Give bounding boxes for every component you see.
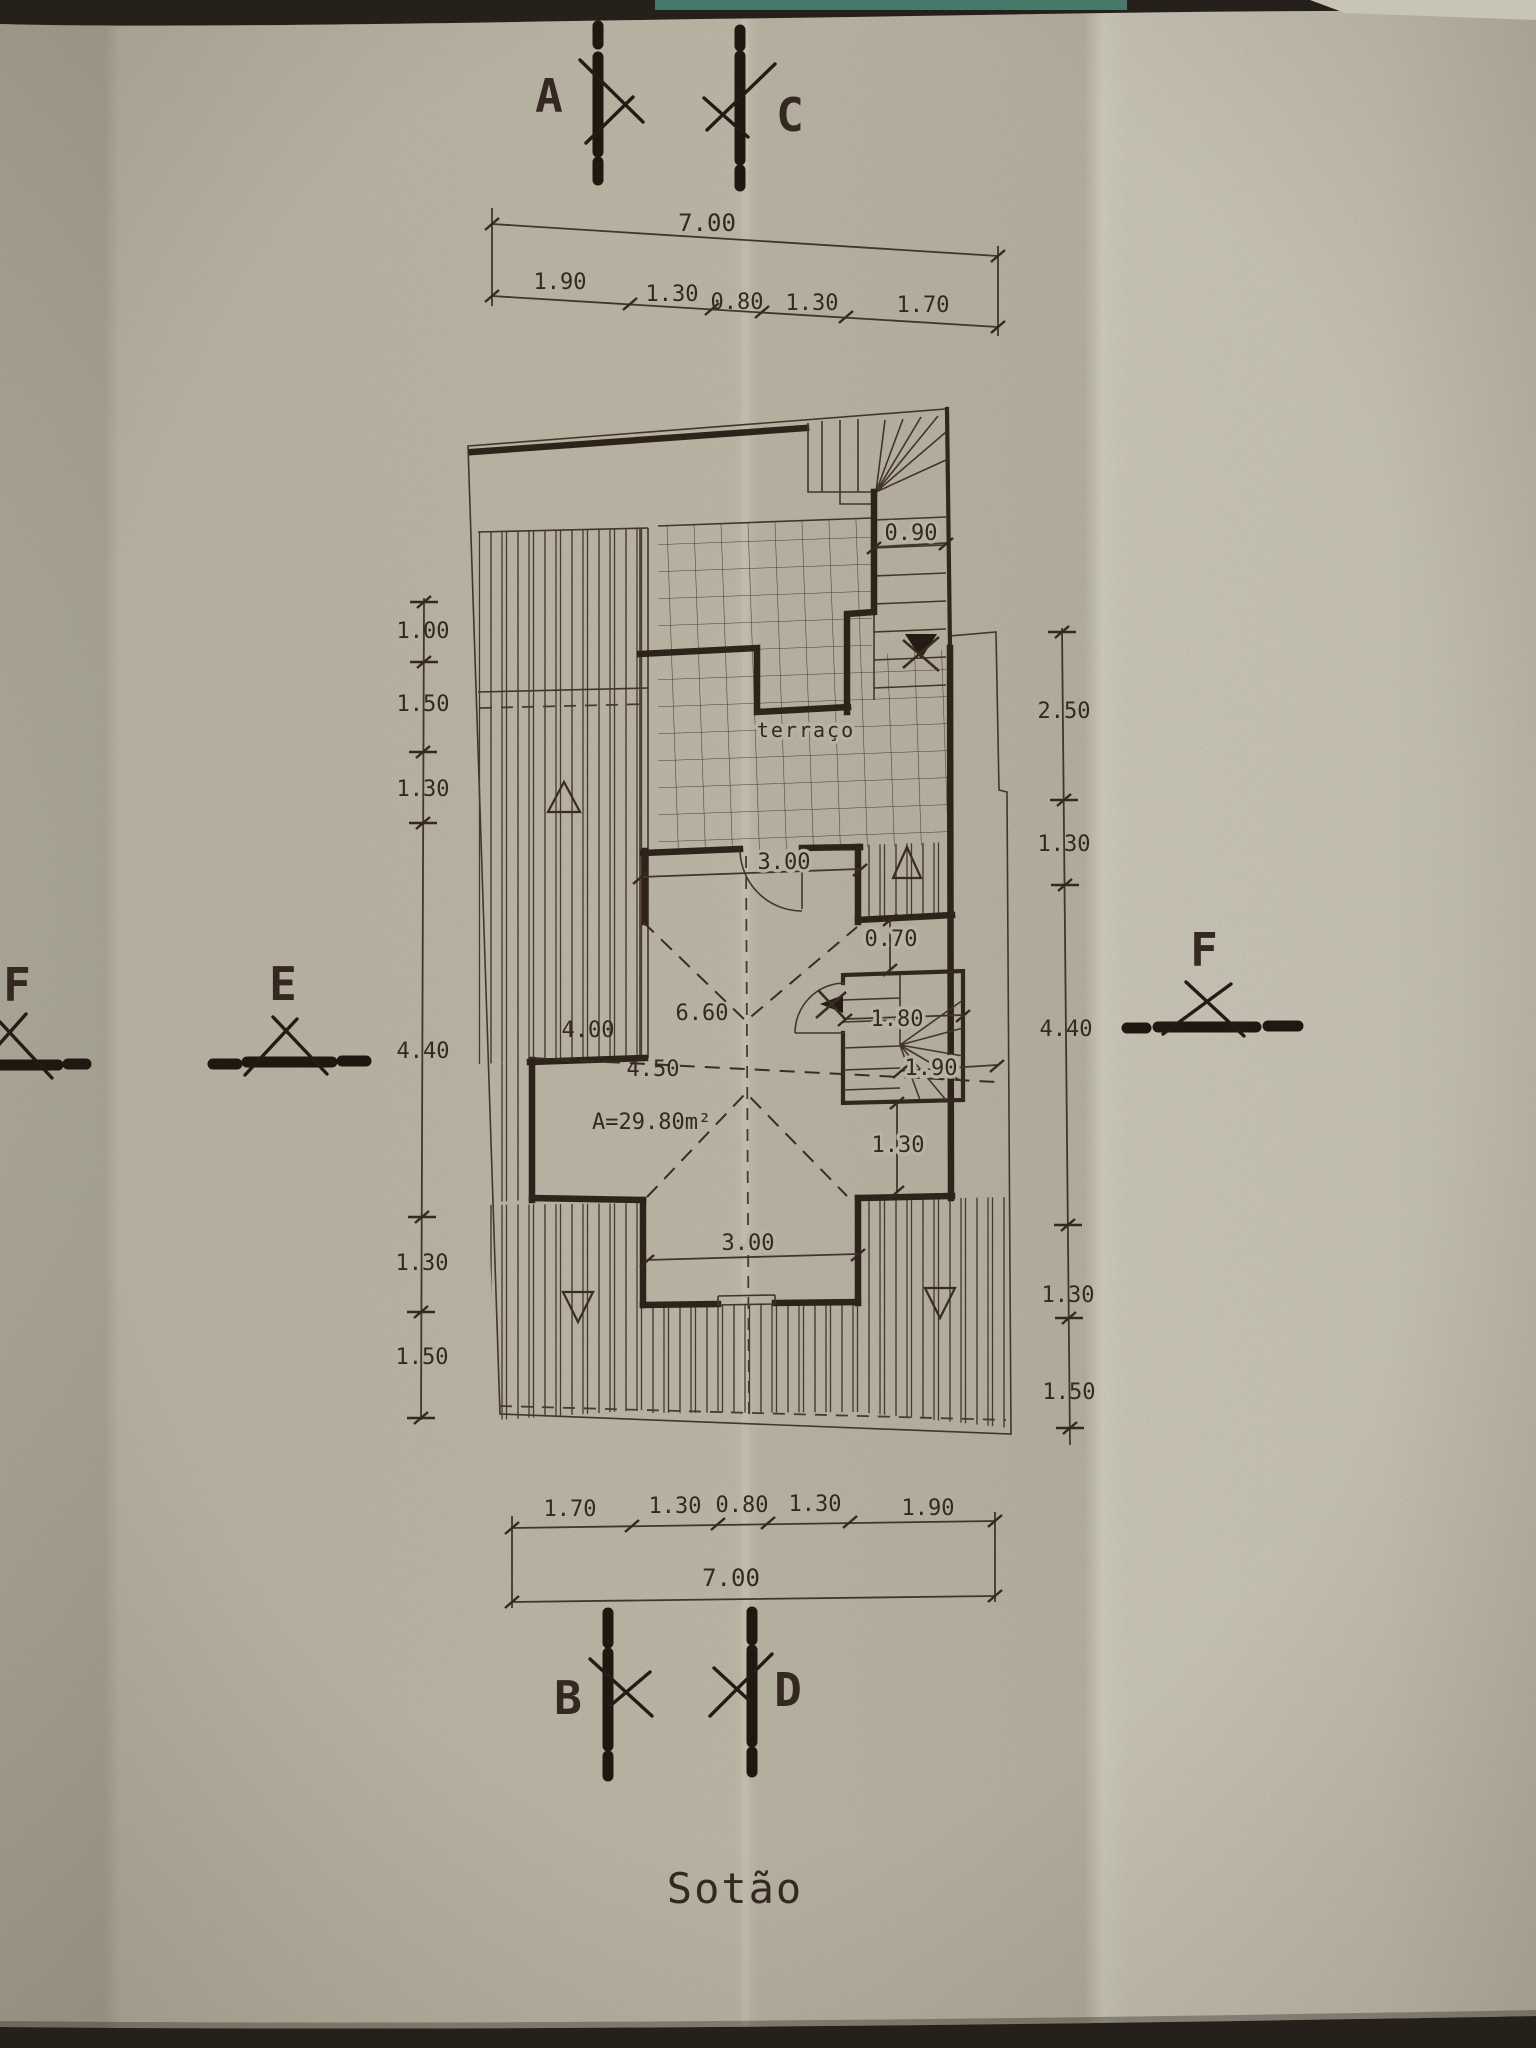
- left-seg-6: 1.50: [396, 1345, 449, 1370]
- section-letter-a: A: [535, 69, 563, 123]
- teal-background-sliver: [655, 0, 1127, 10]
- roof-hatch-west-eave: [492, 1062, 528, 1202]
- dim-room-width: 6.60: [676, 1001, 729, 1026]
- section-letter-b: B: [554, 1671, 582, 1725]
- section-letter-f-left: F: [3, 958, 31, 1012]
- top-seg-1: 1.90: [534, 270, 587, 295]
- dim-stair-1: 1.80: [871, 1007, 924, 1032]
- left-seg-4: 4.40: [397, 1039, 450, 1064]
- roof-hatch-bottom-center: [643, 1303, 858, 1413]
- section-line-f-left: [0, 1064, 86, 1065]
- bottom-seg-4: 1.30: [789, 1492, 842, 1517]
- stair-right-wall: [947, 409, 950, 648]
- top-seg-5: 1.70: [897, 293, 950, 318]
- right-seg-4: 1.30: [1042, 1283, 1095, 1308]
- dim-bottom-bay: 3.00: [722, 1231, 775, 1256]
- section-letter-e: E: [269, 957, 297, 1011]
- dim-stair-2: 1.90: [905, 1056, 958, 1081]
- dim-top-bay: 3.00: [758, 850, 811, 875]
- area-label: A=29.80m²: [592, 1110, 711, 1135]
- section-letter-f-right: F: [1190, 923, 1218, 977]
- section-letter-d: D: [774, 1663, 802, 1717]
- right-seg-5: 1.50: [1043, 1380, 1096, 1405]
- dim-below-stair: 1.30: [872, 1133, 925, 1158]
- top-total-dim: 7.00: [678, 209, 736, 237]
- section-line-f-right: [1127, 1026, 1298, 1028]
- section-line-e: [213, 1061, 366, 1064]
- terrace-label: terraço: [757, 718, 855, 742]
- dim-room-mid: 4.50: [627, 1057, 680, 1082]
- drawing-title: Sotão: [667, 1864, 803, 1913]
- left-seg-5: 1.30: [396, 1251, 449, 1276]
- right-seg-3: 4.40: [1040, 1017, 1093, 1042]
- top-seg-2: 1.30: [646, 282, 699, 307]
- dim-room-left: 4.00: [562, 1018, 615, 1043]
- bottom-seg-5: 1.90: [902, 1496, 955, 1521]
- dim-stair-width: 0.90: [885, 521, 938, 546]
- bottom-seg-3: 0.80: [716, 1493, 769, 1518]
- dim-offset: 0.70: [865, 927, 918, 952]
- left-seg-2: 1.50: [397, 692, 450, 717]
- top-seg-4: 1.30: [786, 291, 839, 316]
- bottom-seg-2: 1.30: [649, 1494, 702, 1519]
- roof-hatch-left-strip: [478, 528, 648, 1064]
- top-seg-3: 0.80: [711, 290, 764, 315]
- left-seg-1: 1.00: [397, 619, 450, 644]
- left-seg-3: 1.30: [397, 777, 450, 802]
- floor-plan-drawing: terraço: [0, 0, 1536, 2048]
- roof-hatch-bottom-right: [858, 1197, 1010, 1428]
- bottom-seg-1: 1.70: [544, 1497, 597, 1522]
- section-letter-c: C: [776, 88, 804, 142]
- right-seg-2: 1.30: [1038, 832, 1091, 857]
- photographed-blueprint-page: terraço: [0, 0, 1536, 2048]
- bottom-total-dim: 7.00: [702, 1564, 760, 1592]
- roof-hatch-bottom-left: [488, 1203, 643, 1420]
- east-wall: [950, 648, 951, 1198]
- right-seg-1: 2.50: [1038, 699, 1091, 724]
